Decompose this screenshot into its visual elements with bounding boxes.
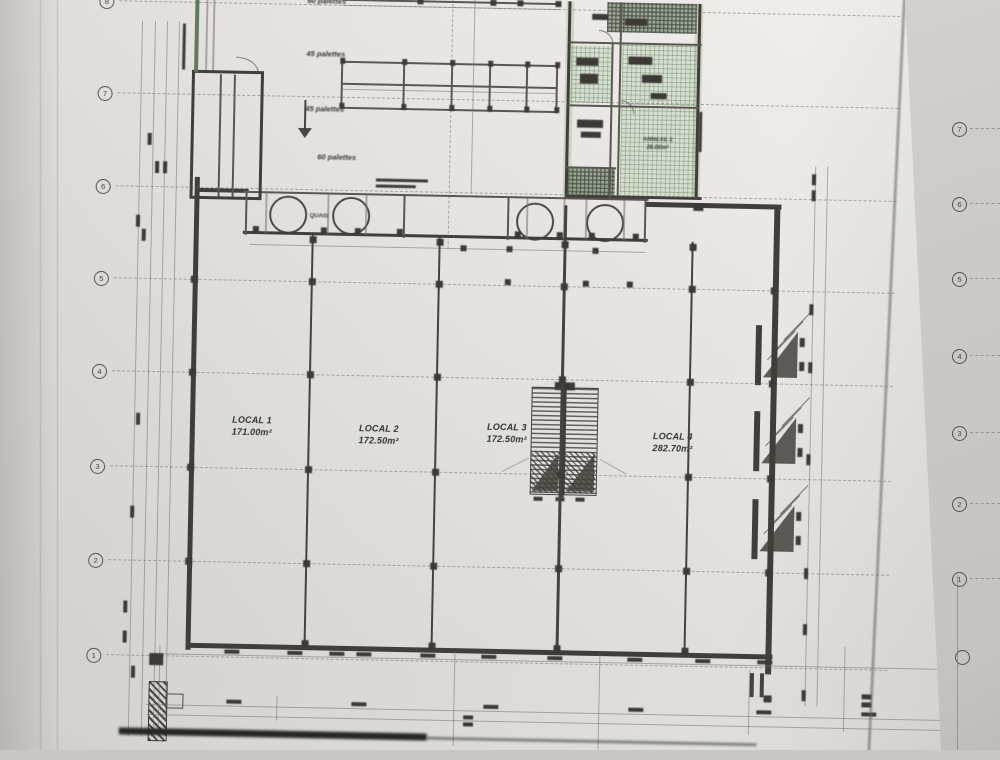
dimension-mark	[488, 61, 493, 67]
dimension-mark	[420, 653, 435, 657]
photo-of-floor-plan: { "sheet": { "locals": [ {"name": "LOCAL…	[0, 0, 1000, 750]
dimension-mark	[554, 107, 559, 113]
ramp-triangle	[760, 505, 795, 552]
dock-side	[245, 191, 248, 235]
dimension-mark	[517, 0, 523, 6]
grid-leader-line	[970, 503, 1000, 504]
grid-bubble-left-7: 7	[97, 86, 112, 101]
dimension-mark	[533, 497, 542, 501]
annex-partition	[218, 74, 222, 196]
dimension-mark	[307, 371, 314, 378]
dimension-mark	[689, 286, 696, 293]
dimension-line	[957, 575, 958, 750]
dimension-mark	[803, 624, 807, 635]
dimension-line	[816, 167, 828, 707]
local-2-label: LOCAL 2 172.50m²	[341, 423, 417, 448]
dimension-mark	[463, 722, 473, 726]
dimension-mark	[690, 244, 697, 251]
dimension-mark	[685, 474, 692, 481]
flow-arrow-shaft	[304, 100, 307, 132]
dimension-mark	[436, 281, 443, 288]
corner-mark	[760, 673, 764, 697]
dimension-mark	[155, 161, 159, 173]
dimension-mark	[642, 75, 662, 83]
grid-bubble-right-2: 2	[952, 497, 967, 512]
dimension-mark	[763, 695, 771, 702]
dimension-mark	[185, 558, 192, 565]
corner-mark	[750, 673, 754, 697]
dimension-mark	[483, 705, 498, 709]
grid-bubble-left-6: 6	[96, 179, 111, 194]
dimension-mark	[329, 652, 344, 656]
line	[212, 0, 216, 70]
dimension-mark	[557, 471, 564, 478]
dock-side	[644, 199, 647, 243]
ramp-wall	[753, 411, 760, 471]
grid-bubble-right-7: 7	[952, 122, 967, 137]
grid-leader-line	[970, 355, 1000, 356]
dimension-mark	[376, 178, 428, 182]
main-sheet: ANNEXE 2 26.00m² QUAIS 60 palettes 45 pa…	[0, 0, 1000, 750]
dock-side	[507, 196, 510, 240]
dimension-mark	[506, 246, 512, 252]
dimension-mark	[799, 362, 804, 371]
dimension-mark	[633, 234, 639, 240]
dimension-mark	[163, 161, 167, 173]
dimension-mark	[397, 229, 403, 235]
door-swing	[502, 458, 529, 472]
grid-leader-line	[970, 578, 1000, 579]
dimension-mark	[321, 227, 327, 233]
wall	[646, 202, 781, 210]
dimension-mark	[589, 233, 595, 239]
dimension-mark	[430, 563, 437, 570]
line	[205, 0, 209, 70]
dimension-mark	[687, 379, 694, 386]
dimension-mark	[804, 568, 808, 579]
dimension-mark	[695, 659, 710, 663]
grid-bubble-left-1: 1	[86, 648, 101, 663]
dimension-mark	[189, 369, 196, 376]
dimension-mark	[401, 104, 406, 110]
dimension-mark	[561, 283, 568, 290]
dimension-mark	[309, 278, 316, 285]
dimension-mark	[136, 413, 140, 425]
dock-side	[623, 200, 626, 240]
dimension-mark	[557, 232, 563, 238]
dimension-mark	[434, 374, 441, 381]
dimension-mark	[555, 62, 560, 68]
exterior-ramp	[753, 411, 806, 472]
dimension-mark	[351, 702, 366, 706]
dimension-line	[128, 21, 143, 737]
dimension-mark	[340, 58, 345, 64]
dimension-mark	[576, 57, 598, 65]
dimension-mark	[765, 569, 772, 576]
dimension-mark	[481, 655, 496, 659]
dimension-mark	[130, 506, 134, 518]
dimension-mark	[287, 651, 302, 655]
corner-detail	[165, 693, 183, 708]
green-wall	[194, 0, 200, 72]
palettes-label-3: 45 palettes	[305, 104, 344, 114]
dock-side	[403, 194, 406, 238]
dimension-mark	[681, 648, 688, 655]
partition	[304, 234, 314, 646]
rack-line	[342, 0, 559, 5]
dimension-mark	[460, 245, 466, 251]
dimension-mark	[355, 228, 361, 234]
dimension-mark	[490, 0, 496, 6]
dimension-mark	[449, 105, 454, 111]
dimension-mark	[226, 700, 241, 704]
annex-room-area: 26.00m²	[629, 144, 687, 153]
grid-leader-line	[970, 128, 1000, 129]
dimension-mark	[253, 226, 259, 232]
dimension-mark	[583, 281, 589, 287]
local-4-label: LOCAL 4 282.70m²	[632, 431, 712, 456]
dimension-mark	[310, 236, 317, 243]
dimension-mark	[628, 708, 643, 712]
extension-line	[598, 654, 601, 749]
annex-wall	[258, 71, 264, 200]
annex-wall	[192, 70, 264, 74]
dimension-mark	[555, 565, 562, 572]
door-swing	[600, 459, 627, 474]
grid-bubble-right-1: 1	[952, 572, 967, 587]
annex-room-label: ANNEXE 2 26.00m²	[629, 136, 687, 153]
dimension-mark	[182, 24, 186, 70]
dimension-mark	[800, 338, 805, 347]
dimension-mark	[437, 239, 444, 246]
staircase	[530, 387, 600, 498]
dimension-mark	[812, 190, 816, 201]
dimension-mark	[806, 454, 810, 465]
grid-bubble-right-4: 4	[952, 349, 967, 364]
line	[471, 0, 476, 193]
dimension-mark	[339, 103, 344, 109]
dimension-mark	[699, 112, 703, 152]
grid-bubble-left-8: 8	[99, 0, 114, 9]
ramp-wall	[751, 499, 758, 559]
grid-leader-line	[970, 432, 1000, 433]
dimension-mark	[757, 660, 772, 664]
dimension-mark	[797, 448, 802, 457]
dimension-mark	[796, 512, 801, 521]
grid-bubble-right-5: 5	[952, 272, 967, 287]
docks-label: QUAIS	[297, 212, 341, 221]
dimension-mark	[581, 132, 601, 138]
grid-leader-line	[970, 203, 1000, 204]
dimension-mark	[428, 643, 435, 650]
dimension-mark	[417, 0, 423, 4]
dimension-mark	[305, 466, 312, 473]
annex-wall	[189, 196, 261, 200]
local-2-area: 172.50m²	[341, 435, 417, 448]
dimension-mark	[627, 658, 642, 662]
stair-column	[555, 382, 575, 390]
dimension-mark	[148, 133, 152, 145]
dimension-mark	[524, 106, 529, 112]
grid-bubble-left-4: 4	[92, 364, 107, 379]
dimension-mark	[131, 666, 135, 678]
ramp-triangle	[761, 417, 796, 464]
extension-line	[453, 651, 456, 746]
dimension-mark	[575, 498, 584, 502]
dimension-mark	[515, 231, 521, 237]
grid-leader-line	[970, 278, 1000, 279]
dimension-mark	[812, 174, 816, 185]
dimension-line	[146, 704, 958, 721]
dimension-mark	[525, 61, 530, 67]
dimension-line	[153, 21, 168, 737]
dimension-mark	[592, 14, 608, 20]
exterior-ramp	[755, 325, 808, 386]
dimension-mark	[580, 74, 598, 84]
dimension-mark	[123, 630, 127, 642]
dock-side	[365, 195, 368, 235]
dimension-mark	[577, 119, 603, 128]
dimension-mark	[625, 18, 647, 25]
dimension-mark	[224, 650, 239, 654]
dimension-mark	[142, 229, 146, 241]
grid-axis-line	[448, 0, 454, 249]
dimension-mark	[123, 600, 127, 612]
dimension-line	[146, 714, 953, 731]
floor-plan-drawing: ANNEXE 2 26.00m² QUAIS 60 palettes 45 pa…	[0, 0, 1000, 760]
dimension-mark	[487, 106, 492, 112]
local-1-area: 171.00m²	[214, 426, 290, 439]
dimension-mark	[376, 184, 416, 188]
grid-bubble-left-5: 5	[94, 271, 109, 286]
partition	[430, 237, 440, 649]
dimension-mark	[651, 93, 667, 99]
dock-side	[585, 200, 588, 240]
wall	[243, 231, 648, 242]
dimension-mark	[798, 424, 803, 433]
dimension-mark	[356, 652, 371, 656]
dimension-mark	[149, 653, 163, 665]
dimension-mark	[505, 279, 511, 285]
dimension-mark	[771, 287, 778, 294]
local-1-label: LOCAL 1 171.00m²	[214, 414, 290, 439]
palettes-label-4: 60 palettes	[317, 152, 356, 162]
wall	[185, 177, 199, 650]
dimension-mark	[756, 710, 771, 714]
extension-line	[843, 647, 846, 732]
dimension-mark	[592, 248, 598, 254]
dock-side	[327, 195, 330, 235]
dimension-mark	[802, 690, 806, 701]
annex-room: ANNEXE 2 26.00m²	[620, 107, 697, 197]
dock-side	[265, 193, 268, 233]
dimension-mark	[627, 282, 633, 288]
dimension-mark	[767, 475, 774, 482]
dimension-mark	[562, 241, 569, 248]
dimension-mark	[555, 1, 561, 7]
dimension-mark	[402, 59, 407, 65]
dimension-mark	[187, 464, 194, 471]
grid-bubble-left-3: 3	[90, 459, 105, 474]
dimension-mark	[769, 380, 776, 387]
dimension-line	[141, 21, 156, 737]
dimension-mark	[136, 215, 140, 227]
dimension-mark	[303, 560, 310, 567]
dimension-mark	[628, 57, 652, 65]
dimension-mark	[553, 645, 560, 652]
dimension-mark	[301, 640, 308, 647]
dimension-mark	[450, 60, 455, 66]
dimension-mark	[809, 304, 813, 315]
exterior-ramp	[751, 499, 804, 560]
dimension-mark	[808, 362, 812, 373]
dimension-mark	[693, 204, 703, 211]
dimension-mark	[559, 376, 566, 383]
local-4-area: 282.70m²	[632, 442, 712, 455]
ramp-triangle	[763, 331, 798, 378]
grid-bubble-right-6: 6	[952, 197, 967, 212]
grid-bubble-right-3: 3	[952, 426, 967, 441]
dimension-mark	[432, 469, 439, 476]
dimension-mark	[463, 715, 473, 719]
sheet-bottom-shadow	[427, 737, 757, 747]
dimension-mark	[683, 568, 690, 575]
rack-post	[555, 65, 558, 113]
annex-partition	[232, 75, 236, 197]
ramp-wall	[755, 325, 762, 385]
dimension-mark	[547, 656, 562, 660]
grid-bubble-left-2: 2	[88, 553, 103, 568]
dimension-mark	[796, 536, 801, 545]
dock-leveler	[516, 202, 555, 241]
dimension-mark	[191, 276, 198, 283]
